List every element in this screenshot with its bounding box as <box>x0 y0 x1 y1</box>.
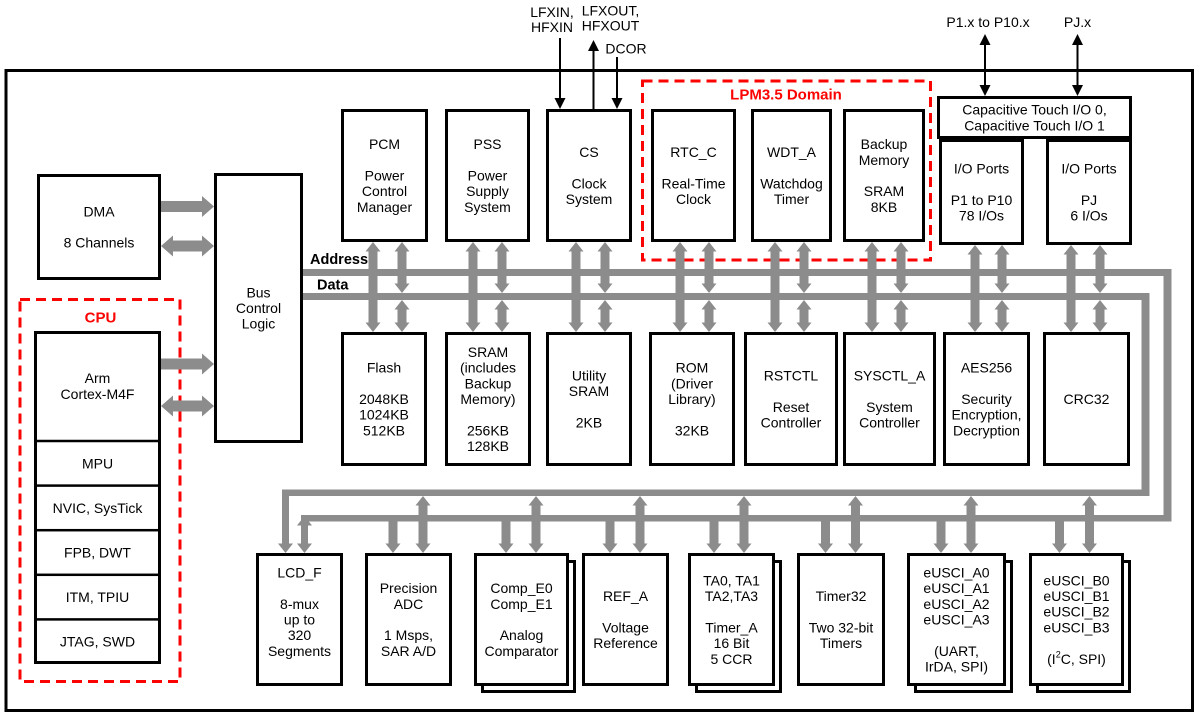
svg-text:PJ: PJ <box>1081 192 1097 208</box>
svg-text:(includes: (includes <box>460 360 516 376</box>
svg-text:Security: Security <box>961 391 1012 407</box>
svg-text:ITM, TPIU: ITM, TPIU <box>66 589 130 605</box>
svg-text:256KB: 256KB <box>467 422 509 438</box>
svg-text:Analog: Analog <box>500 627 544 643</box>
svg-text:Memory: Memory <box>859 152 910 168</box>
svg-text:P1.x to P10.x: P1.x to P10.x <box>946 14 1029 30</box>
svg-text:Precision: Precision <box>380 580 438 596</box>
svg-text:PSS: PSS <box>473 136 501 152</box>
svg-text:HFXIN: HFXIN <box>531 19 573 35</box>
svg-text:DMA: DMA <box>83 203 115 219</box>
svg-text:1 Msps,: 1 Msps, <box>384 627 433 643</box>
svg-text:MPU: MPU <box>82 455 113 471</box>
svg-text:Timer_A: Timer_A <box>705 619 758 635</box>
svg-text:RTC_C: RTC_C <box>670 144 716 160</box>
svg-text:CPU: CPU <box>85 310 117 327</box>
svg-text:Memory): Memory) <box>460 391 515 407</box>
svg-text:JTAG, SWD: JTAG, SWD <box>60 634 135 650</box>
svg-text:Power: Power <box>365 168 405 184</box>
svg-text:eUSCI_A3: eUSCI_A3 <box>923 612 989 628</box>
svg-text:NVIC, SysTick: NVIC, SysTick <box>53 500 144 516</box>
svg-text:LFXOUT,: LFXOUT, <box>582 3 640 19</box>
svg-text:eUSCI_B0: eUSCI_B0 <box>1043 572 1109 588</box>
svg-text:eUSCI_B2: eUSCI_B2 <box>1043 604 1109 620</box>
svg-text:SRAM: SRAM <box>569 383 609 399</box>
svg-text:CRC32: CRC32 <box>1064 391 1110 407</box>
svg-text:TA2,TA3: TA2,TA3 <box>705 588 758 604</box>
svg-text:eUSCI_B3: eUSCI_B3 <box>1043 619 1109 635</box>
svg-text:8-mux: 8-mux <box>280 596 319 612</box>
svg-text:(UART,: (UART, <box>934 643 979 659</box>
svg-text:Flash: Flash <box>367 360 401 376</box>
svg-text:Real-Time: Real-Time <box>661 175 725 191</box>
svg-text:eUSCI_A0: eUSCI_A0 <box>923 564 989 580</box>
svg-text:SRAM: SRAM <box>468 344 508 360</box>
svg-text:DCOR: DCOR <box>605 41 646 57</box>
svg-text:5 CCR: 5 CCR <box>710 651 752 667</box>
svg-text:eUSCI_A2: eUSCI_A2 <box>923 596 989 612</box>
svg-text:Logic: Logic <box>242 316 275 332</box>
svg-text:HFXOUT: HFXOUT <box>582 18 640 34</box>
svg-text:16 Bit: 16 Bit <box>714 635 750 651</box>
svg-text:ROM: ROM <box>676 360 709 376</box>
svg-text:Manager: Manager <box>357 199 413 215</box>
svg-text:TA0, TA1: TA0, TA1 <box>703 572 760 588</box>
svg-text:128KB: 128KB <box>467 438 509 454</box>
svg-text:PCM: PCM <box>369 136 400 152</box>
svg-text:6 I/Os: 6 I/Os <box>1070 208 1107 224</box>
svg-text:Utility: Utility <box>572 367 606 383</box>
svg-text:78 I/Os: 78 I/Os <box>959 208 1004 224</box>
svg-text:Clock: Clock <box>676 191 712 207</box>
svg-text:Capacitive Touch I/O 0,: Capacitive Touch I/O 0, <box>962 102 1106 118</box>
svg-text:I/O Ports: I/O Ports <box>1061 160 1116 176</box>
svg-text:Library): Library) <box>668 391 715 407</box>
svg-text:Control: Control <box>362 183 407 199</box>
svg-text:Controller: Controller <box>761 415 822 431</box>
svg-text:Two 32-bit: Two 32-bit <box>809 619 874 635</box>
svg-text:Comp_E0: Comp_E0 <box>490 580 552 596</box>
svg-text:2KB: 2KB <box>576 415 602 431</box>
svg-text:P1 to P10: P1 to P10 <box>951 192 1013 208</box>
svg-text:RSTCTL: RSTCTL <box>764 367 819 383</box>
svg-text:Segments: Segments <box>268 643 331 659</box>
svg-text:Comparator: Comparator <box>485 643 559 659</box>
svg-text:IrDA, SPI): IrDA, SPI) <box>925 659 988 675</box>
svg-text:Reference: Reference <box>593 635 658 651</box>
svg-text:Reset: Reset <box>773 399 810 415</box>
svg-text:8 Channels: 8 Channels <box>64 235 135 251</box>
svg-text:I/O Ports: I/O Ports <box>954 160 1009 176</box>
svg-text:Timers: Timers <box>820 635 862 651</box>
svg-text:Voltage: Voltage <box>602 619 649 635</box>
svg-text:Bus: Bus <box>246 284 270 300</box>
svg-text:32KB: 32KB <box>675 422 709 438</box>
svg-text:System: System <box>566 191 613 207</box>
svg-text:Timer32: Timer32 <box>816 588 867 604</box>
svg-text:Clock: Clock <box>571 175 607 191</box>
svg-text:(Driver: (Driver <box>671 375 713 391</box>
svg-text:512KB: 512KB <box>363 422 405 438</box>
svg-text:Comp_E1: Comp_E1 <box>490 596 552 612</box>
svg-text:Supply: Supply <box>466 183 509 199</box>
svg-text:LCD_F: LCD_F <box>277 564 321 580</box>
svg-text:WDT_A: WDT_A <box>767 144 817 160</box>
svg-text:eUSCI_B1: eUSCI_B1 <box>1043 588 1109 604</box>
svg-text:SRAM: SRAM <box>864 183 904 199</box>
svg-text:PJ.x: PJ.x <box>1064 14 1091 30</box>
svg-text:eUSCI_A1: eUSCI_A1 <box>923 580 989 596</box>
svg-text:Arm: Arm <box>85 370 111 386</box>
svg-text:up to: up to <box>284 612 315 628</box>
svg-text:System: System <box>464 199 511 215</box>
svg-text:Decryption: Decryption <box>953 422 1020 438</box>
svg-text:SAR A/D: SAR A/D <box>381 643 436 659</box>
svg-text:CS: CS <box>579 144 598 160</box>
svg-text:Encryption,: Encryption, <box>951 407 1021 423</box>
svg-text:ADC: ADC <box>394 596 424 612</box>
svg-text:1024KB: 1024KB <box>359 407 409 423</box>
svg-text:Control: Control <box>236 300 281 316</box>
svg-text:AES256: AES256 <box>961 360 1013 376</box>
svg-text:Timer: Timer <box>774 191 810 207</box>
svg-text:2048KB: 2048KB <box>359 391 409 407</box>
svg-text:Backup: Backup <box>861 136 908 152</box>
svg-text:FPB, DWT: FPB, DWT <box>64 545 131 561</box>
svg-text:320: 320 <box>288 627 312 643</box>
svg-text:Address: Address <box>310 252 368 268</box>
svg-text:SYSCTL_A: SYSCTL_A <box>854 367 926 383</box>
svg-text:Data: Data <box>317 278 349 294</box>
svg-text:8KB: 8KB <box>871 199 897 215</box>
svg-text:LPM3.5 Domain: LPM3.5 Domain <box>730 87 842 104</box>
svg-text:REF_A: REF_A <box>603 588 649 604</box>
svg-text:Backup: Backup <box>465 375 512 391</box>
svg-text:System: System <box>866 399 913 415</box>
svg-text:Controller: Controller <box>859 415 920 431</box>
svg-text:Watchdog: Watchdog <box>760 175 823 191</box>
svg-text:Power: Power <box>468 168 508 184</box>
svg-text:Capacitive Touch I/O 1: Capacitive Touch I/O 1 <box>964 117 1105 133</box>
svg-text:Cortex-M4F: Cortex-M4F <box>61 386 135 402</box>
svg-text:LFXIN,: LFXIN, <box>530 4 574 20</box>
